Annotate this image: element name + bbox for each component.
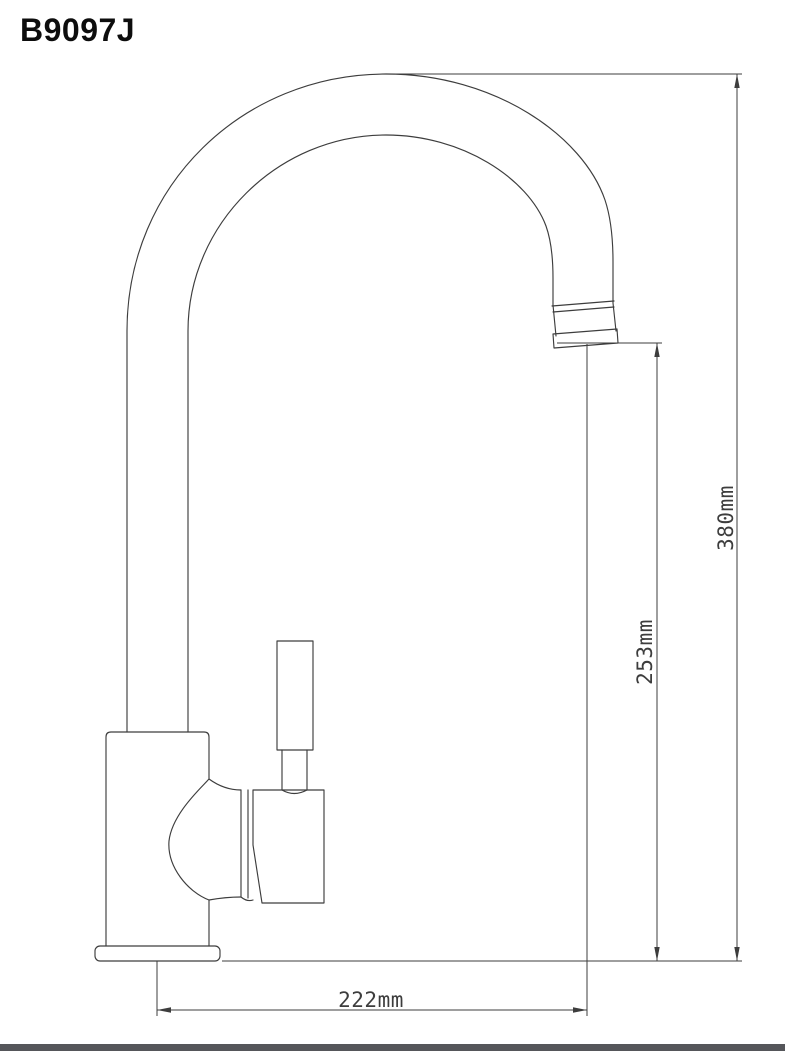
body-valve-connector (209, 779, 241, 900)
valve-collar (241, 790, 253, 901)
arrow-up-icon (734, 74, 739, 88)
faucet-body (106, 732, 209, 946)
label-spout-reach: 222mm (338, 988, 404, 1012)
arrow-left-icon (157, 1007, 171, 1012)
arrow-right-icon (573, 1007, 587, 1012)
dimension-lines (157, 74, 742, 1016)
spec-sheet-page: B9097J (0, 0, 785, 1051)
arrow-up-icon (654, 343, 659, 357)
arrow-down-icon (734, 947, 739, 961)
arrow-down-icon (654, 947, 659, 961)
label-spout-outlet-height: 253mm (633, 619, 657, 685)
footer-divider-bar (0, 1044, 785, 1051)
gooseneck-inner-edge (188, 135, 556, 732)
lever-handle (277, 641, 313, 750)
base-plate (95, 946, 220, 961)
gooseneck-outer-edge (127, 74, 616, 732)
aerator-joint-lines (552, 301, 614, 312)
faucet-technical-drawing: 380mm 253mm 222mm (0, 0, 785, 1051)
spout-tip-cap (553, 329, 618, 348)
valve-housing (253, 790, 324, 903)
dimension-arrowheads (157, 74, 740, 1013)
dimension-labels: 380mm 253mm 222mm (338, 485, 738, 1012)
handle-stem (282, 750, 307, 794)
label-total-height: 380mm (714, 485, 738, 551)
faucet-outline (95, 74, 618, 961)
